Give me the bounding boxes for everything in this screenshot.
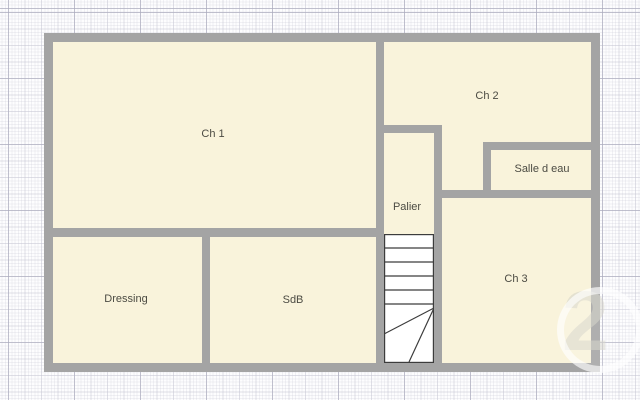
wall-dressing-sdb-divider — [202, 228, 210, 372]
wall-outer-left — [44, 33, 53, 372]
stair-treads-graphic — [384, 234, 434, 363]
wall-ch3-left — [434, 125, 442, 372]
room-label-ch2: Ch 2 — [475, 90, 498, 102]
room-label-salle-d-eau: Salle d eau — [514, 163, 569, 175]
wall-ch1-bottom — [44, 228, 384, 237]
room-label-sdb: SdB — [283, 294, 304, 306]
room-label-ch1: Ch 1 — [201, 128, 224, 140]
graph-paper-background: Ch 1 Ch 2 Salle d eau Palier Ch 3 Dressi… — [0, 0, 640, 400]
wall-outer-right — [591, 33, 600, 372]
floor-plan: Ch 1 Ch 2 Salle d eau Palier Ch 3 Dressi… — [44, 33, 600, 372]
room-label-palier: Palier — [393, 201, 421, 213]
room-label-dressing: Dressing — [104, 293, 147, 305]
wall-outer-top — [44, 33, 600, 42]
wall-salle-d-eau-top — [483, 142, 591, 150]
wall-ch3-top — [434, 190, 591, 198]
wall-ch1-right — [376, 42, 384, 372]
staircase — [384, 234, 434, 363]
wall-palier-top — [376, 125, 442, 133]
wall-salle-d-eau-left — [483, 142, 491, 198]
wall-outer-bottom — [44, 363, 600, 372]
room-label-ch3: Ch 3 — [504, 273, 527, 285]
